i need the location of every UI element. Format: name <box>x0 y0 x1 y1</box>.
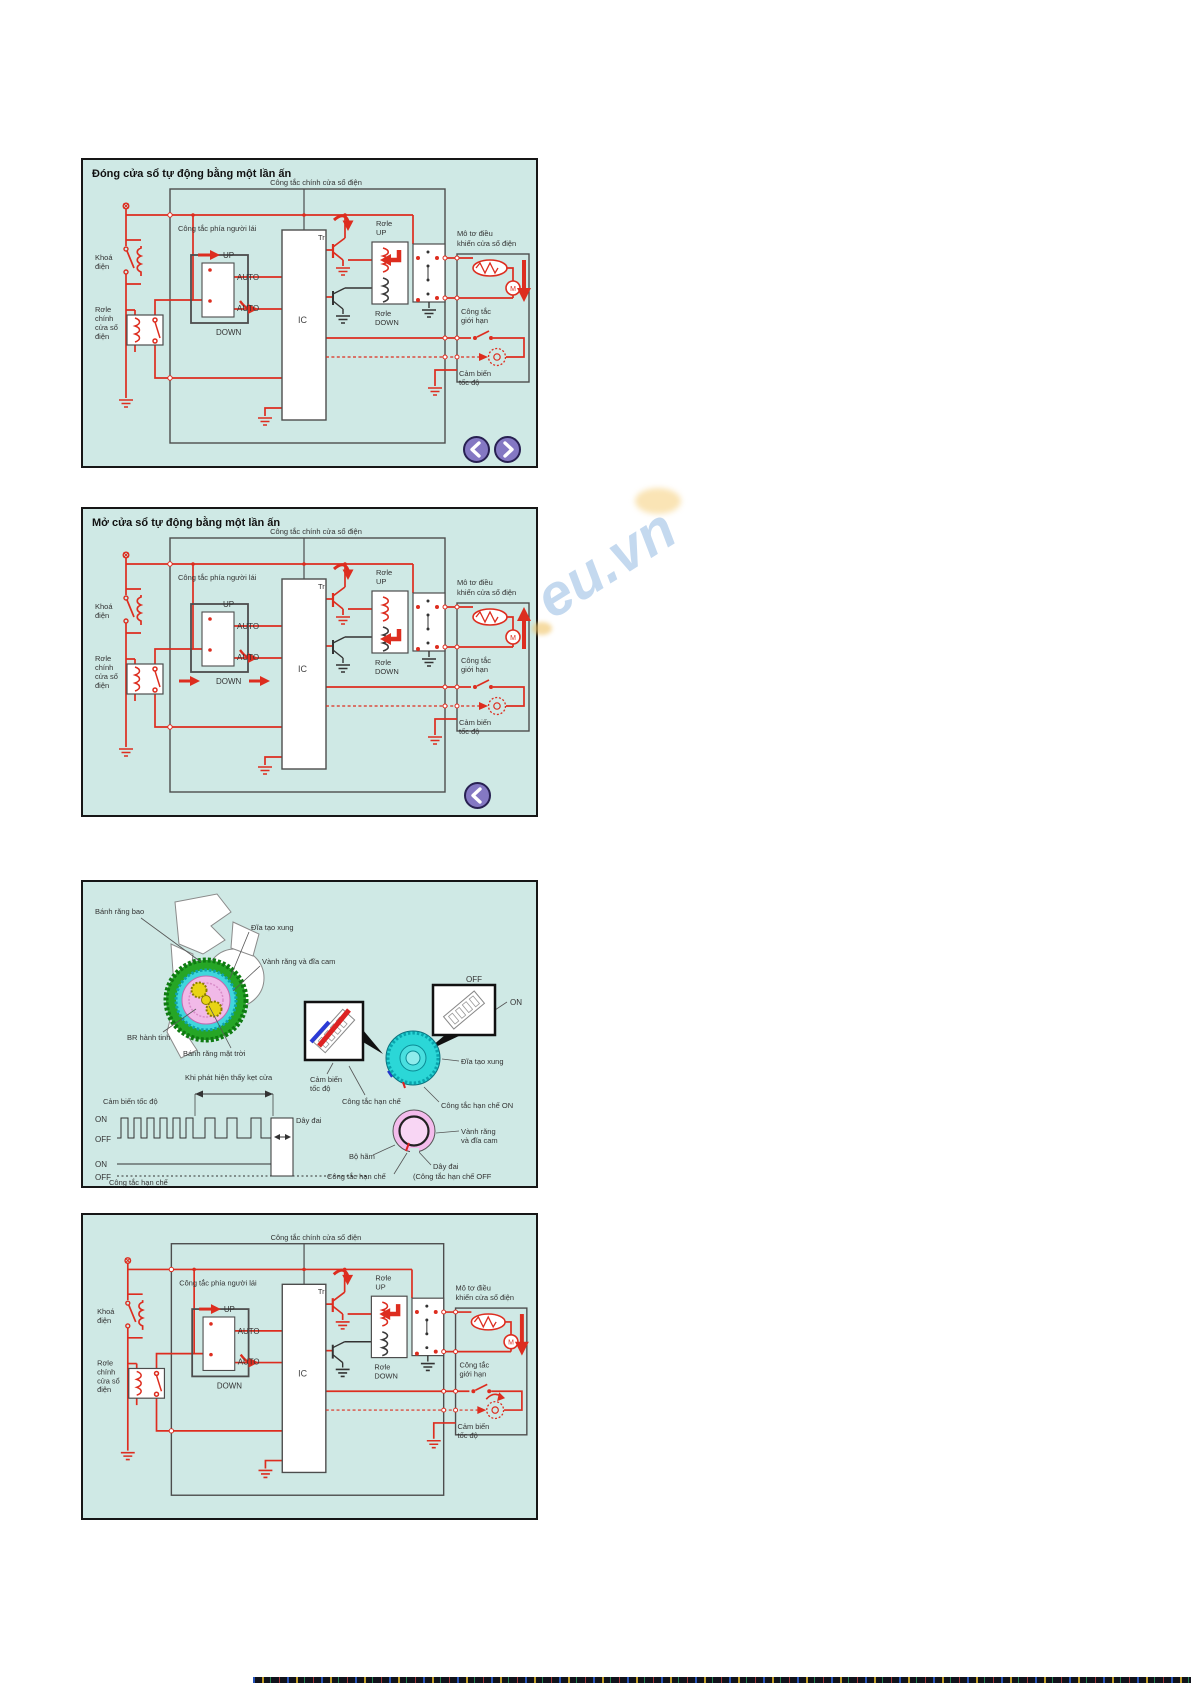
on-label: ON <box>95 1115 107 1124</box>
cam-ring2-label: Vành răng <box>461 1127 496 1136</box>
sun-gear-icon <box>202 996 211 1005</box>
planetary-gear-assembly <box>166 960 246 1040</box>
sensor-callout-label: tốc độ <box>310 1084 330 1093</box>
on-label: ON <box>95 1160 107 1169</box>
circuit-diagram <box>97 1233 527 1495</box>
watermark-text: eu.vn <box>524 495 688 632</box>
pulse-disc-icon <box>386 1031 440 1088</box>
sun-gear-label: Bánh răng mặt trời <box>183 1049 246 1058</box>
limit-on-label: Công tắc hạn chế ON <box>441 1101 513 1110</box>
speed-sensor-label: Cảm biến tốc độ <box>103 1097 158 1106</box>
planet-gear-icon <box>192 983 207 998</box>
limit-switch-inset-callout <box>425 985 495 1052</box>
sensor-callout-label: Cảm biến <box>310 1075 342 1084</box>
cam-ring-label: Vành răng và đĩa cam <box>262 957 335 966</box>
circuit-diagram <box>95 527 529 792</box>
panel-circuit-overview <box>81 1213 538 1520</box>
panel-jam-mechanism: Bánh răng bao Đĩa tạo xung Vành răng và … <box>81 880 538 1188</box>
limit-off-label: (Công tắc hạn chế OFF <box>413 1172 492 1181</box>
chevron-left-icon <box>466 784 489 807</box>
sensor-inset-callout <box>305 1002 383 1060</box>
footer-strip <box>253 1677 1191 1683</box>
chevron-right-icon <box>496 438 519 461</box>
nav-forward-button[interactable] <box>494 436 521 463</box>
panel-auto-close: Đóng cửa sổ tự động bằng một lần ấn <box>81 158 538 468</box>
inset-off-label: OFF <box>466 975 482 984</box>
planet-gear-label: BR hành tinh <box>127 1033 170 1042</box>
limit-bottom-label: Công tắc hạn chế <box>327 1172 387 1181</box>
nav-back-button[interactable] <box>463 436 490 463</box>
inset-on-label: ON <box>510 998 522 1007</box>
sensor-rotation-arrow <box>486 1392 505 1401</box>
panel-auto-open: Mở cửa sổ tự động bằng một lần ấn <box>81 507 538 817</box>
belt2-label: Dây đai <box>433 1162 459 1171</box>
watermark-blob <box>635 488 681 514</box>
pulse-disc2-label: Đĩa tạo xung <box>461 1057 504 1066</box>
circuit-diagram <box>95 178 529 443</box>
cam-ring2-label: và đĩa cam <box>461 1136 498 1145</box>
pulse-disc-label: Đĩa tạo xung <box>251 923 294 932</box>
cam-ring-icon <box>393 1110 435 1154</box>
belt-label: Dây đai <box>296 1116 322 1125</box>
off-label: OFF <box>95 1135 111 1144</box>
brake-label: Bộ hãm <box>349 1152 375 1161</box>
pulse-timing-chart <box>117 1094 367 1176</box>
nav-back-button[interactable] <box>464 782 491 809</box>
chevron-left-icon <box>465 438 488 461</box>
ring-gear-label: Bánh răng bao <box>95 907 144 916</box>
panel-title: Đóng cửa sổ tự động bằng một lần ấn <box>92 167 292 180</box>
limit-switch-label: Công tắc hạn chế <box>109 1178 169 1186</box>
jam-detect-label: Khi phát hiện thấy kẹt cửa <box>185 1073 273 1082</box>
limit-mid-label: Công tắc hạn chế <box>342 1097 402 1106</box>
panel-title: Mở cửa sổ tự động bằng một lần ấn <box>92 516 280 529</box>
